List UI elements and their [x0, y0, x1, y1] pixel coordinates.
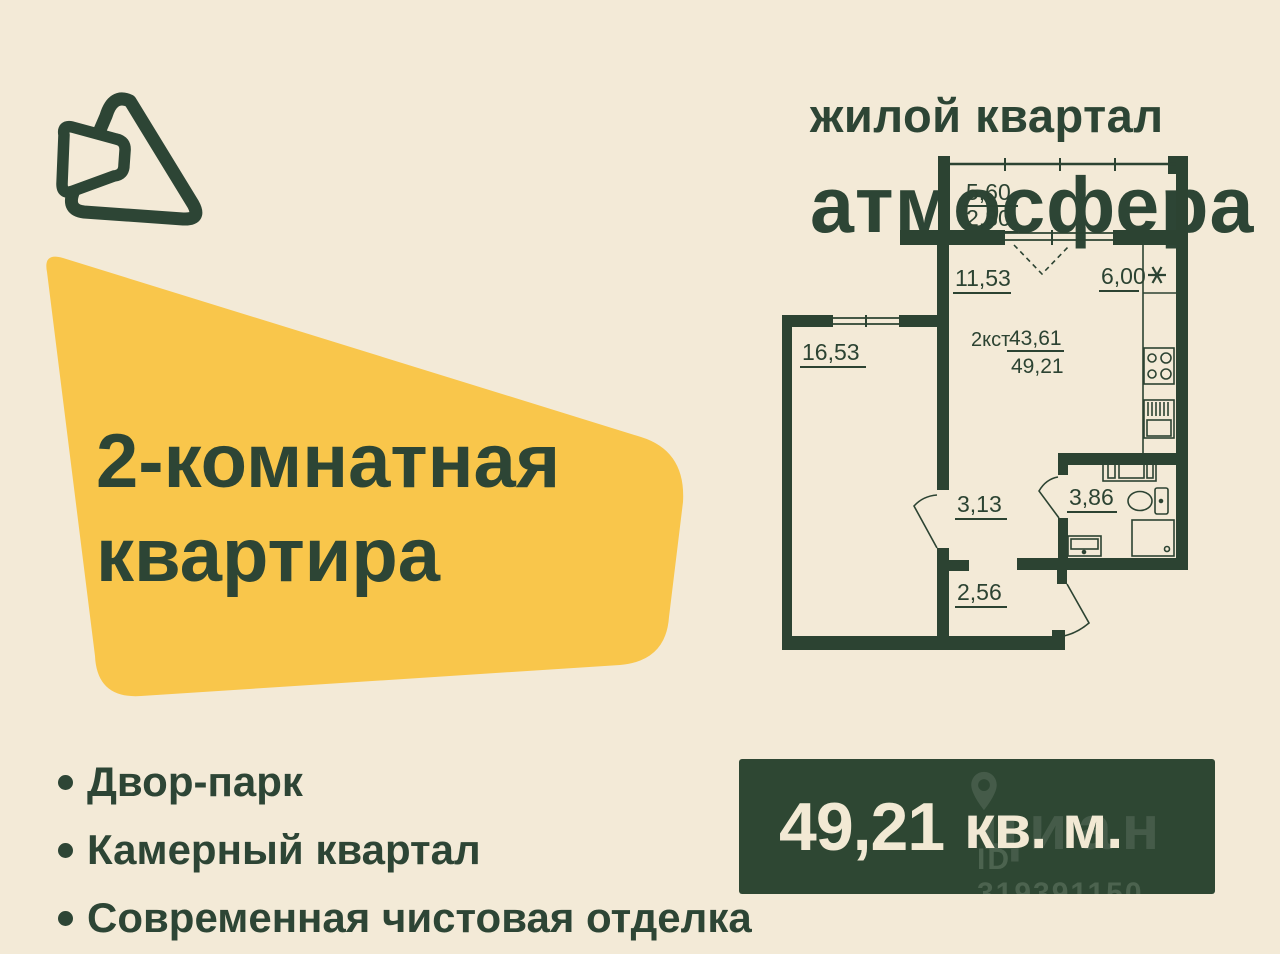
- wall-bath-left-upper: [1058, 453, 1068, 475]
- label-total-area: 49,21: [1011, 355, 1064, 378]
- wall-bottom-step: [1052, 630, 1065, 650]
- label-balcony-area-reduced: 2,80: [966, 205, 1011, 231]
- area-panel: циан ID 319391150 49,21 кв. м.: [739, 759, 1215, 894]
- label-type-code: 2кст: [971, 329, 1010, 351]
- balcony-door-leaf: [1014, 245, 1070, 274]
- label-bedroom-area: 16,53: [802, 339, 860, 365]
- feature-item: Камерный квартал: [58, 816, 752, 884]
- room-door: [914, 495, 937, 548]
- feature-label: Современная чистовая отделка: [87, 894, 752, 942]
- label-living-area: 11,53: [955, 265, 1011, 291]
- wall-bath-bottom: [1017, 558, 1188, 570]
- flyer-page: жилой квартал атмосфера 2-комнатная квар…: [0, 0, 1280, 954]
- washing-machine-icon: [1103, 461, 1156, 481]
- label-hall-area: 3,13: [957, 491, 1002, 517]
- label-balcony-area: 5,60: [966, 179, 1011, 205]
- toilet-icon: [1128, 488, 1168, 514]
- fridge-icon: [1148, 267, 1166, 283]
- wall-balcony-left: [938, 156, 950, 232]
- feature-list: Двор-парк Камерный квартал Современная ч…: [58, 748, 752, 952]
- shower-icon: [1132, 520, 1174, 556]
- headline-line1: 2-комнатная: [96, 415, 560, 509]
- label-corridor-area: 2,56: [957, 579, 1002, 605]
- bath-sink-icon: [1068, 536, 1101, 556]
- area-text: 49,21 кв. м.: [779, 759, 1122, 894]
- feature-label: Двор-парк: [87, 758, 303, 806]
- bullet-dot-icon: [58, 775, 73, 790]
- floor-plan: 5,60 2,80 11,53 6,00 16,53 2кст 43,61 49…: [780, 148, 1200, 668]
- stove-icon: [1144, 348, 1174, 384]
- brand-logo-icon: [52, 88, 212, 230]
- feature-item: Современная чистовая отделка: [58, 884, 752, 952]
- wall-right-outer: [1176, 230, 1188, 570]
- area-unit: кв. м.: [964, 792, 1122, 862]
- wall-entry-stub: [1057, 570, 1067, 584]
- entrance-door: [1058, 584, 1089, 637]
- wall-bottom: [782, 636, 1052, 650]
- kitchen-fixtures: [1143, 245, 1176, 453]
- sink-icon: [1144, 400, 1174, 438]
- feature-item: Двор-парк: [58, 748, 752, 816]
- headline-line2: квартира: [96, 509, 560, 603]
- logo-flag-shape: [62, 127, 125, 192]
- wall-bath-left-lower: [1058, 518, 1068, 558]
- headline: 2-комнатная квартира: [96, 415, 560, 603]
- bullet-dot-icon: [58, 911, 73, 926]
- feature-label: Камерный квартал: [87, 826, 481, 874]
- wall-room-top-2: [900, 315, 937, 327]
- wall-central-upper: [937, 245, 949, 490]
- wall-hall-stub: [937, 560, 969, 571]
- label-living-total: 43,61: [1009, 327, 1062, 350]
- bullet-dot-icon: [58, 843, 73, 858]
- label-kitchen-area: 6,00: [1101, 263, 1146, 289]
- area-value: 49,21: [779, 788, 944, 866]
- bath-door: [1039, 477, 1059, 518]
- wall-balcony-right: [1176, 156, 1188, 232]
- brand-tagline: жилой квартал: [810, 88, 1280, 143]
- label-bathroom-area: 3,86: [1069, 484, 1114, 510]
- wall-left-outer: [782, 315, 792, 650]
